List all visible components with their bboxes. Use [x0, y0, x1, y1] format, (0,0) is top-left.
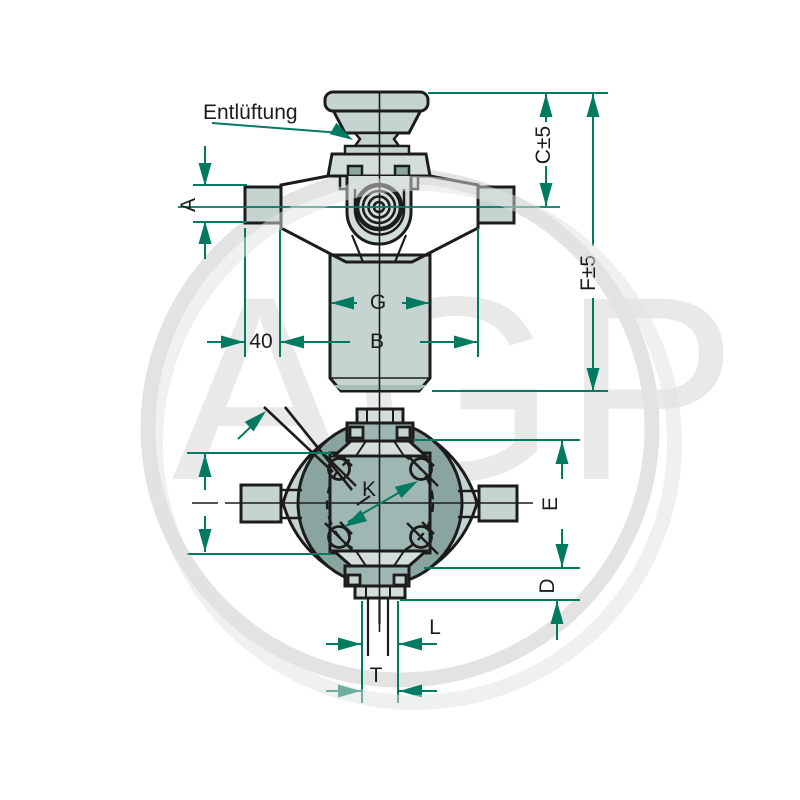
dim-label-c: C±5: [532, 113, 556, 177]
right-port: [478, 187, 514, 223]
dim-label-40: 40: [241, 330, 281, 354]
dim-label-l: L: [415, 616, 455, 640]
dim-label-t: T: [356, 664, 396, 688]
reservoir-cap-knob: [325, 92, 428, 154]
left-port: [245, 187, 281, 223]
dim-label-f: F±5: [577, 241, 601, 305]
section-leader-line-1: [264, 407, 333, 472]
cap-tab-right: [395, 166, 409, 176]
dim-label-e: E: [539, 484, 563, 524]
technical-drawing-page: AGP: [0, 0, 800, 800]
push-rod-pins: [368, 599, 388, 656]
dim-label-a: A: [177, 185, 201, 225]
dim-label-k: K: [349, 478, 389, 502]
vent-label: Entlüftung: [203, 101, 267, 125]
dim-label-d: D: [536, 566, 560, 606]
drawing-canvas: [0, 0, 800, 800]
cap-tab-left: [348, 166, 362, 176]
dim-label-b: B: [357, 330, 397, 354]
dim-label-g: G: [358, 291, 398, 315]
